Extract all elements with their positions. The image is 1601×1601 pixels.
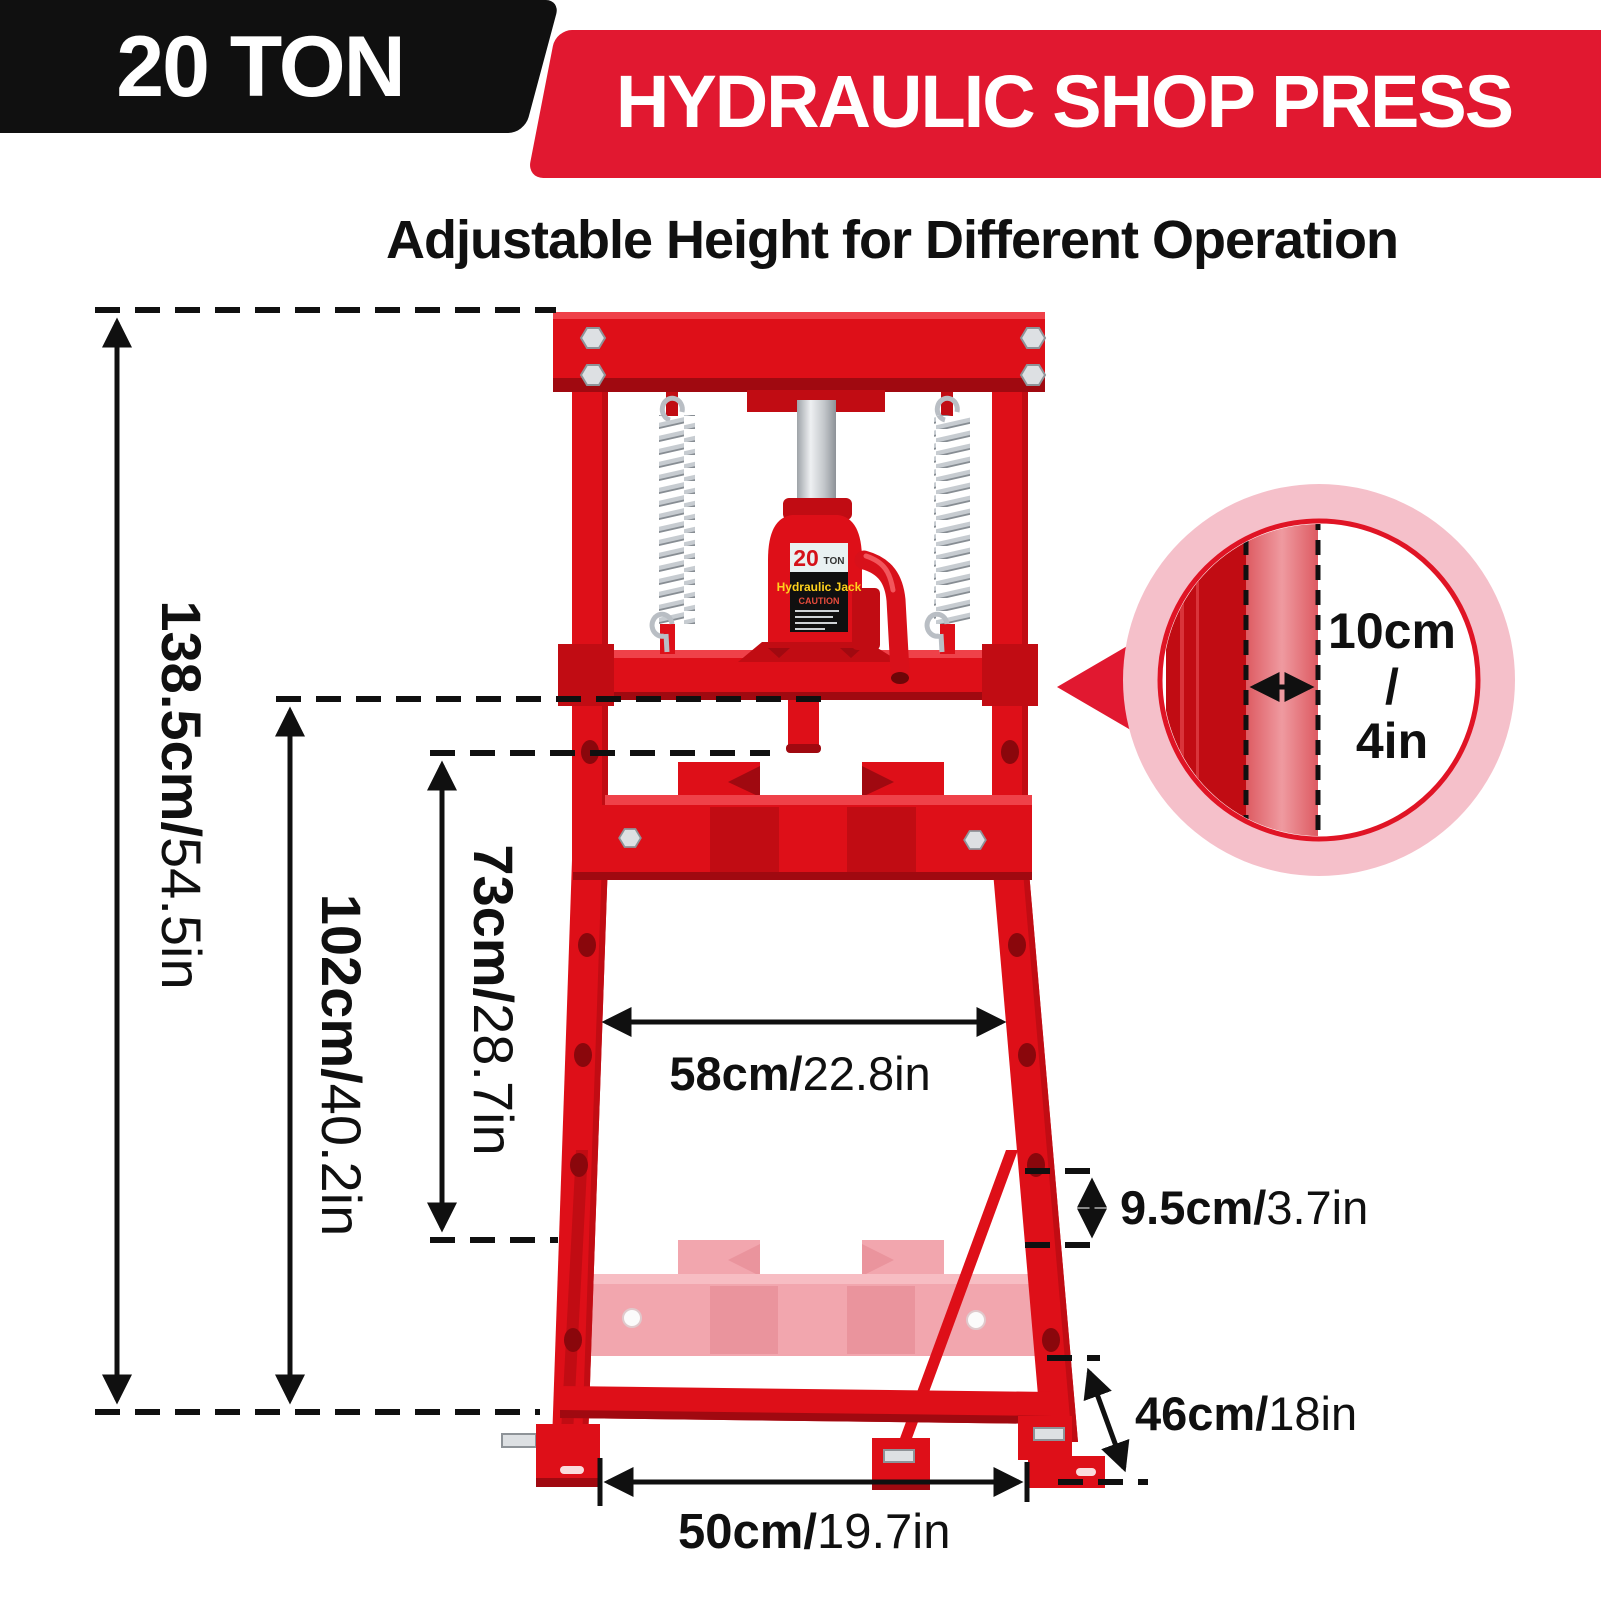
work-table bbox=[573, 762, 1032, 880]
ram bbox=[786, 700, 821, 753]
dim-working-width: 58cm/22.8in bbox=[606, 1022, 1002, 1100]
hex-bolt bbox=[1021, 365, 1045, 385]
left-post-shade bbox=[602, 385, 608, 865]
pump-cylinder bbox=[852, 588, 880, 650]
post-width-callout: 10cm / 4in bbox=[1057, 484, 1515, 876]
table-beam-shade bbox=[573, 872, 1032, 880]
jack-capacity-unit: TON bbox=[824, 556, 845, 567]
working-width-label: 58cm/22.8in bbox=[669, 1047, 930, 1100]
dimension-arrow bbox=[1089, 1372, 1124, 1468]
return-spring-left bbox=[652, 398, 695, 652]
table-channel bbox=[710, 807, 779, 878]
ghost-bolt bbox=[623, 1309, 641, 1327]
press-diagram: 20 TON Hydraulic Jack CAUTION bbox=[0, 0, 1601, 1601]
foot-edge bbox=[536, 1478, 600, 1487]
label-fine-print bbox=[795, 616, 833, 618]
hex-bolt bbox=[964, 831, 986, 849]
ram-to-table-label: 73cm/28.7in bbox=[462, 844, 525, 1155]
handle-socket-opening bbox=[891, 672, 909, 684]
top-beam-highlight bbox=[553, 312, 1045, 319]
hex-bolt bbox=[581, 328, 605, 348]
ghost-table-channel bbox=[847, 1286, 915, 1354]
top-beam-shade bbox=[553, 378, 1045, 392]
post-width-imperial: 4in bbox=[1356, 713, 1428, 769]
hydraulic-jack: 20 TON Hydraulic Jack CAUTION bbox=[738, 498, 909, 684]
hole-spacing-label: 9.5cm/3.7in bbox=[1120, 1181, 1368, 1234]
anchor-bolt bbox=[1034, 1428, 1064, 1440]
table-channel bbox=[847, 807, 916, 878]
anchor-bolt bbox=[884, 1450, 914, 1462]
jack-capacity: 20 bbox=[793, 545, 819, 571]
hex-bolt bbox=[1021, 328, 1045, 348]
label-fine-print bbox=[795, 610, 839, 612]
base-width-label: 50cm/19.7in bbox=[678, 1505, 950, 1559]
post-width-metric: 10cm bbox=[1328, 603, 1456, 659]
left-foot bbox=[502, 1424, 600, 1487]
right-post-shade bbox=[1022, 385, 1028, 865]
dim-base-width: 50cm/19.7in bbox=[600, 1458, 1027, 1559]
right-rear-foot bbox=[1018, 1416, 1105, 1488]
ghost-table-channel bbox=[710, 1286, 778, 1354]
label-fine-print bbox=[795, 628, 825, 630]
base-depth-label: 46cm/18in bbox=[1135, 1387, 1357, 1440]
ghost-bolt bbox=[967, 1311, 985, 1329]
working-height-label: 102cm/40.2in bbox=[310, 894, 373, 1237]
jack-label-caution: CAUTION bbox=[799, 596, 840, 606]
spring-anchor bbox=[941, 392, 953, 416]
moving-beam-end-cap bbox=[982, 644, 1038, 706]
label-fine-print bbox=[795, 622, 837, 624]
jack-piston-rod bbox=[797, 400, 836, 506]
hex-bolt bbox=[581, 365, 605, 385]
shop-press: 20 TON Hydraulic Jack CAUTION bbox=[502, 312, 1105, 1490]
return-spring-right bbox=[927, 398, 970, 652]
dim-hole-spacing: 9.5cm/3.7in bbox=[1025, 1171, 1368, 1245]
post-width-separator: / bbox=[1385, 659, 1399, 715]
total-height-label: 138.5cm/54.5in bbox=[150, 600, 213, 989]
jack-label-title: Hydraulic Jack bbox=[777, 580, 862, 594]
foot-plate bbox=[536, 1424, 600, 1487]
table-beam bbox=[573, 805, 1032, 880]
anchor-bolt bbox=[502, 1434, 536, 1447]
product-infographic: 20 TON HYDRAULIC SHOP PRESS Adjustable H… bbox=[0, 0, 1601, 1601]
foot-slot bbox=[1076, 1468, 1096, 1476]
foot-slot bbox=[560, 1466, 584, 1474]
spring-anchor bbox=[666, 392, 678, 416]
hex-bolt bbox=[619, 829, 641, 847]
